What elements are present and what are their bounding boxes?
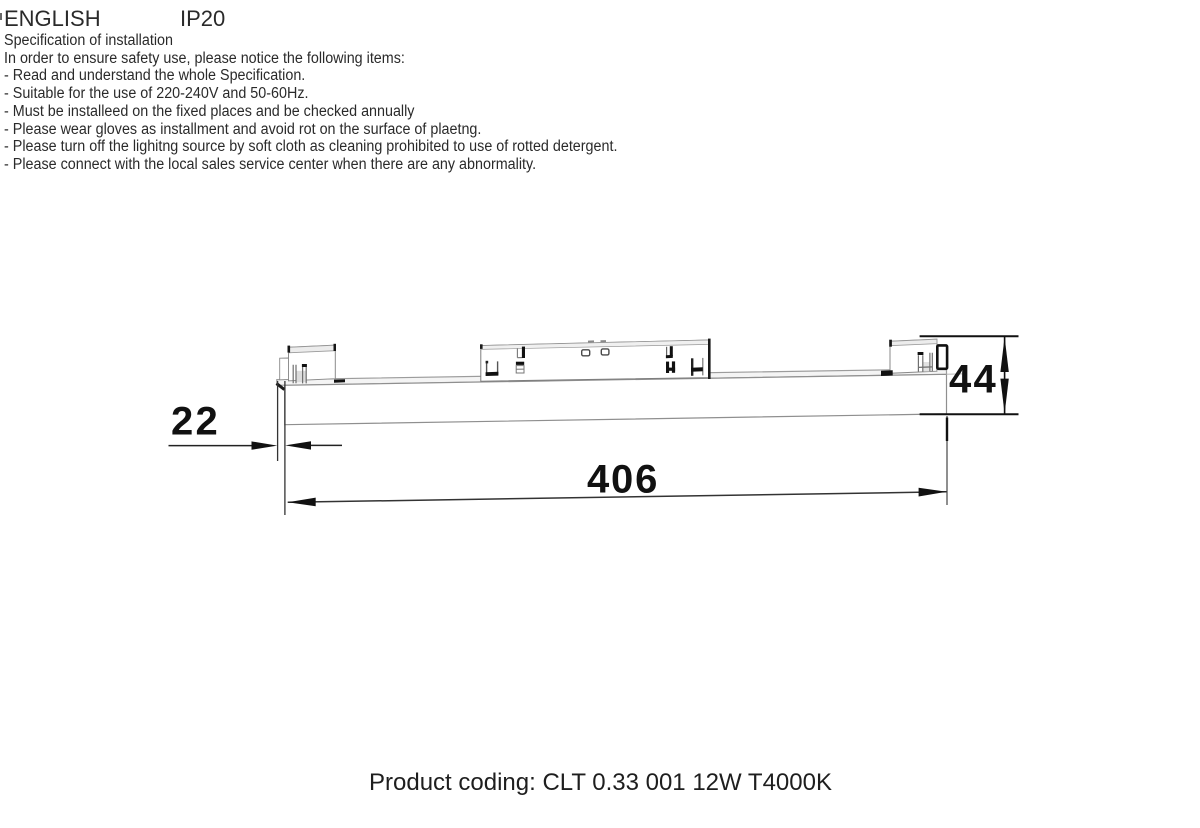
svg-text:406: 406 — [587, 458, 659, 502]
svg-text:44: 44 — [949, 358, 998, 402]
svg-text:22: 22 — [171, 400, 220, 444]
